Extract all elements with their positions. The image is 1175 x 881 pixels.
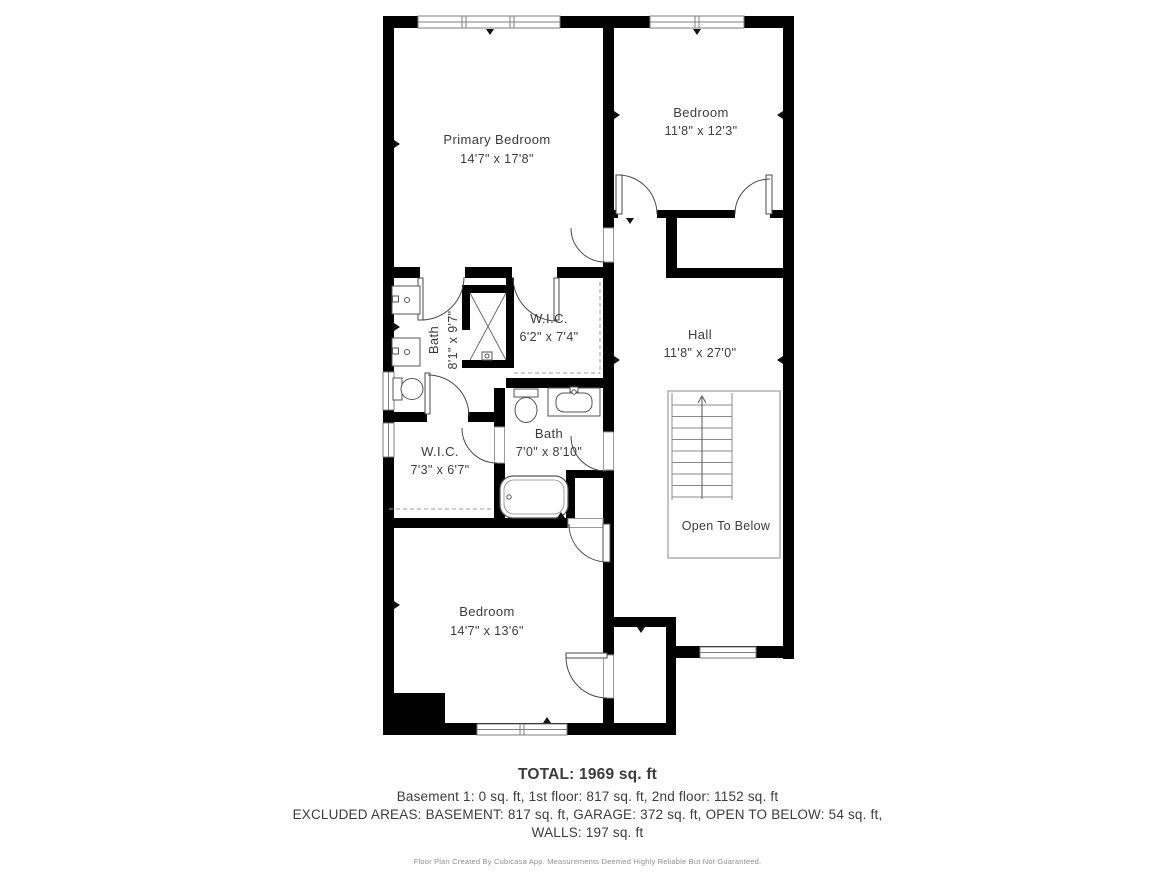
door (566, 653, 614, 698)
area-summary: TOTAL: 1969 sq. ft Basement 1: 0 sq. ft,… (0, 766, 1175, 866)
room-label-primary-bedroom: Primary Bedroom (443, 132, 550, 147)
floor-areas-text: Basement 1: 0 sq. ft, 1st floor: 817 sq.… (0, 788, 1175, 806)
door (462, 427, 505, 463)
toilet-icon (393, 378, 423, 400)
room-dims-bedroom-3: 14'7" x 13'6" (450, 624, 524, 638)
room-dims-primary-wic: 6'2" x 7'4" (519, 330, 578, 344)
room-dims-bath-2: 7'0" x 8'10" (516, 445, 582, 459)
room-label-wic-2: W.I.C. (421, 444, 459, 459)
window (418, 16, 560, 28)
window (650, 16, 744, 28)
floor-plan: Primary Bedroom 14'7" x 17'8" Bedroom 11… (0, 0, 1175, 762)
room-dims-wic-2: 7'3" x 6'7" (410, 463, 469, 477)
window (700, 647, 756, 658)
door (568, 519, 610, 563)
room-dims-primary-bedroom: 14'7" x 17'8" (460, 152, 534, 166)
shower-icon (470, 293, 506, 360)
door (425, 373, 469, 416)
room-label-bedroom-3: Bedroom (459, 604, 515, 619)
room-label-bedroom-2: Bedroom (673, 105, 729, 120)
door (735, 175, 772, 214)
room-label-bath-2: Bath (535, 426, 563, 441)
room-label-primary-bath: Bath (426, 326, 441, 354)
toilet-icon (514, 389, 538, 423)
walls-area-text: WALLS: 197 sq. ft (0, 824, 1175, 842)
total-area-text: TOTAL: 1969 sq. ft (0, 766, 1175, 784)
open-to-below-label: Open To Below (682, 519, 771, 533)
window (383, 372, 394, 410)
floor-plan-page: Primary Bedroom 14'7" x 17'8" Bedroom 11… (0, 0, 1175, 881)
disclaimer-text: Floor Plan Created By Cubicasa App. Meas… (0, 857, 1175, 866)
excluded-areas-text: EXCLUDED AREAS: BASEMENT: 817 sq. ft, GA… (0, 806, 1175, 824)
door (616, 175, 657, 214)
room-label-primary-wic: W.I.C. (530, 311, 568, 326)
room-dims-hall: 11'8" x 27'0" (664, 346, 737, 360)
door (571, 228, 614, 262)
doors (418, 175, 772, 698)
vanity-sink-icon (392, 286, 420, 314)
room-dims-primary-bath: 8'1" x 9'7" (446, 310, 460, 369)
vanity-sink-icon (392, 338, 420, 366)
window (383, 423, 394, 457)
room-label-hall: Hall (688, 327, 712, 342)
bathtub-icon (500, 476, 568, 518)
window (477, 724, 567, 735)
room-dims-bedroom-2: 11'8" x 12'3" (665, 124, 738, 138)
vanity-sink-icon (548, 387, 600, 416)
